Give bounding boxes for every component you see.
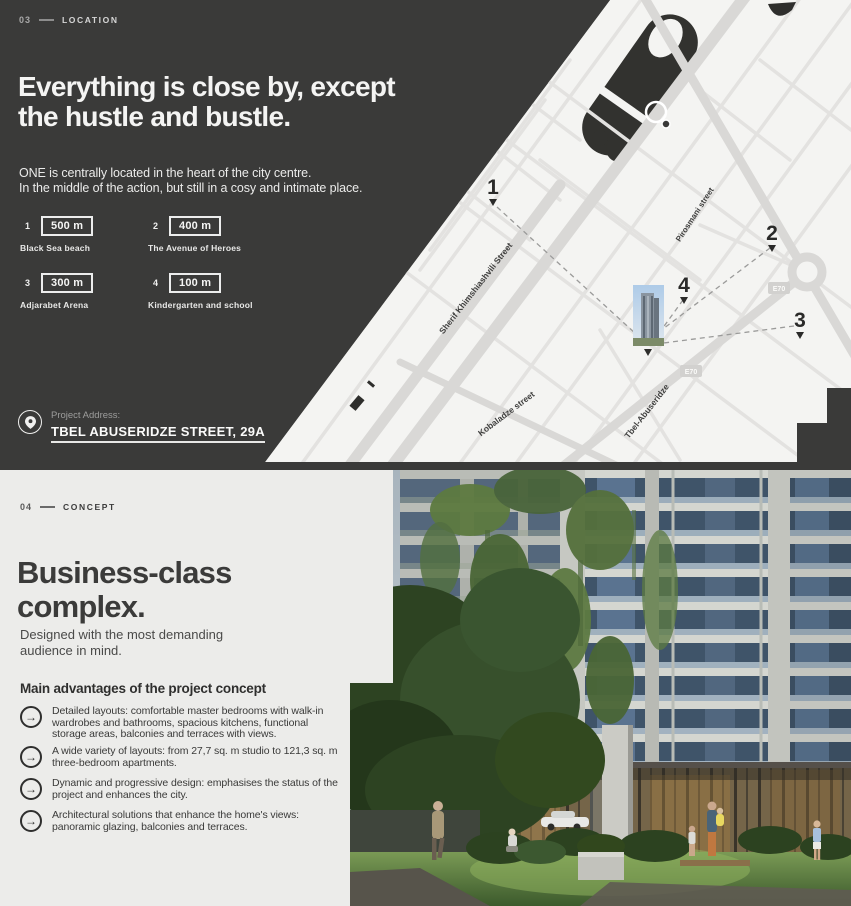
svg-text:3: 3 [794,309,806,332]
distance-item-arena: 3 300 m Adjarabet Arena [20,273,152,310]
advantage-text: A wide variety of layouts: from 27,7 sq.… [52,746,340,769]
eyebrow-dash [39,19,54,21]
building-render-photo [350,470,851,906]
section-label: CONCEPT [63,502,116,512]
location-heading-line1: Everything is close by, except [18,71,395,102]
advantages-title: Main advantages of the project concept [20,681,266,696]
distance-label: The Avenue of Heroes [148,243,280,253]
arrow-right-icon: → [20,778,42,800]
svg-text:E70: E70 [773,286,786,293]
address-link[interactable]: TBEL ABUSERIDZE STREET, 29A [51,424,265,443]
concept-subtext-line1: Designed with the most demanding [20,627,223,643]
concept-subtext: Designed with the most demanding audienc… [20,627,223,658]
section-number: 03 [19,15,31,25]
building-render-graphic [350,470,851,906]
address-label: Project Address: [51,410,265,421]
distance-label: Kindergarten and school [148,300,280,310]
distance-item-beach: 1 500 m Black Sea beach [20,216,152,253]
location-heading-line2: the hustle and bustle. [18,101,290,132]
arrow-right-icon: → [20,810,42,832]
svg-text:4: 4 [678,274,690,297]
section-location: Sherif Khimshiashvili Street Pirosmani s… [0,0,851,470]
section-label: LOCATION [62,15,119,25]
concept-subtext-line2: audience in mind. [20,643,223,659]
distance-number-badge: 4 [148,276,163,291]
concept-heading-line1: Business-class [17,555,232,590]
section-index-concept: 04 CONCEPT [20,502,116,512]
planter-box [577,834,625,880]
location-subtext: ONE is centrally located in the heart of… [19,166,362,195]
svg-text:2: 2 [766,222,778,245]
distance-item-avenue: 2 400 m The Avenue of Heroes [148,216,280,253]
distance-number-badge: 1 [20,219,35,234]
map-point [662,120,670,128]
section-number: 04 [20,502,32,512]
project-address-block: Project Address: TBEL ABUSERIDZE STREET,… [18,409,265,443]
map-roundabout [792,257,822,287]
distance-number-badge: 2 [148,219,163,234]
svg-text:1: 1 [487,176,499,199]
advantage-item: → Architectural solutions that enhance t… [20,810,340,833]
distance-item-school: 4 100 m Kindergarten and school [148,273,280,310]
project-tower-thumbnail [633,285,664,356]
distance-label: Black Sea beach [20,243,152,253]
advantage-text: Dynamic and progressive design: emphasis… [52,778,340,801]
distance-value: 300 m [41,273,93,293]
distance-value: 400 m [169,216,221,236]
brochure-page: Sherif Khimshiashvili Street Pirosmani s… [0,0,851,906]
location-subtext-line2: In the middle of the action, but still i… [19,181,362,196]
arrow-right-icon: → [20,746,42,768]
advantage-item: → A wide variety of layouts: from 27,7 s… [20,746,340,769]
road-badge-e70-2: E70 [680,365,702,377]
location-subtext-line1: ONE is centrally located in the heart of… [19,166,362,181]
distance-value: 500 m [41,216,93,236]
advantage-item: → Detailed layouts: comfortable master b… [20,706,340,741]
advantage-text: Detailed layouts: comfortable master bed… [52,706,340,741]
arrow-right-icon: → [20,706,42,728]
eyebrow-dash [40,506,55,508]
panel-notch [350,470,393,683]
distance-label: Adjarabet Arena [20,300,152,310]
location-heading: Everything is close by, except the hustl… [18,72,395,132]
advantage-item: → Dynamic and progressive design: emphas… [20,778,340,801]
bench [680,860,750,866]
concept-heading: Business-class complex. [17,556,232,624]
svg-text:E70: E70 [685,369,698,376]
advantage-text: Architectural solutions that enhance the… [52,810,340,833]
location-pin-icon [18,410,42,434]
concept-heading-line2: complex. [17,589,145,624]
road-badge-e70-1: E70 [768,282,790,294]
section-index-location: 03 LOCATION [19,15,119,25]
distance-number-badge: 3 [20,276,35,291]
distance-value: 100 m [169,273,221,293]
